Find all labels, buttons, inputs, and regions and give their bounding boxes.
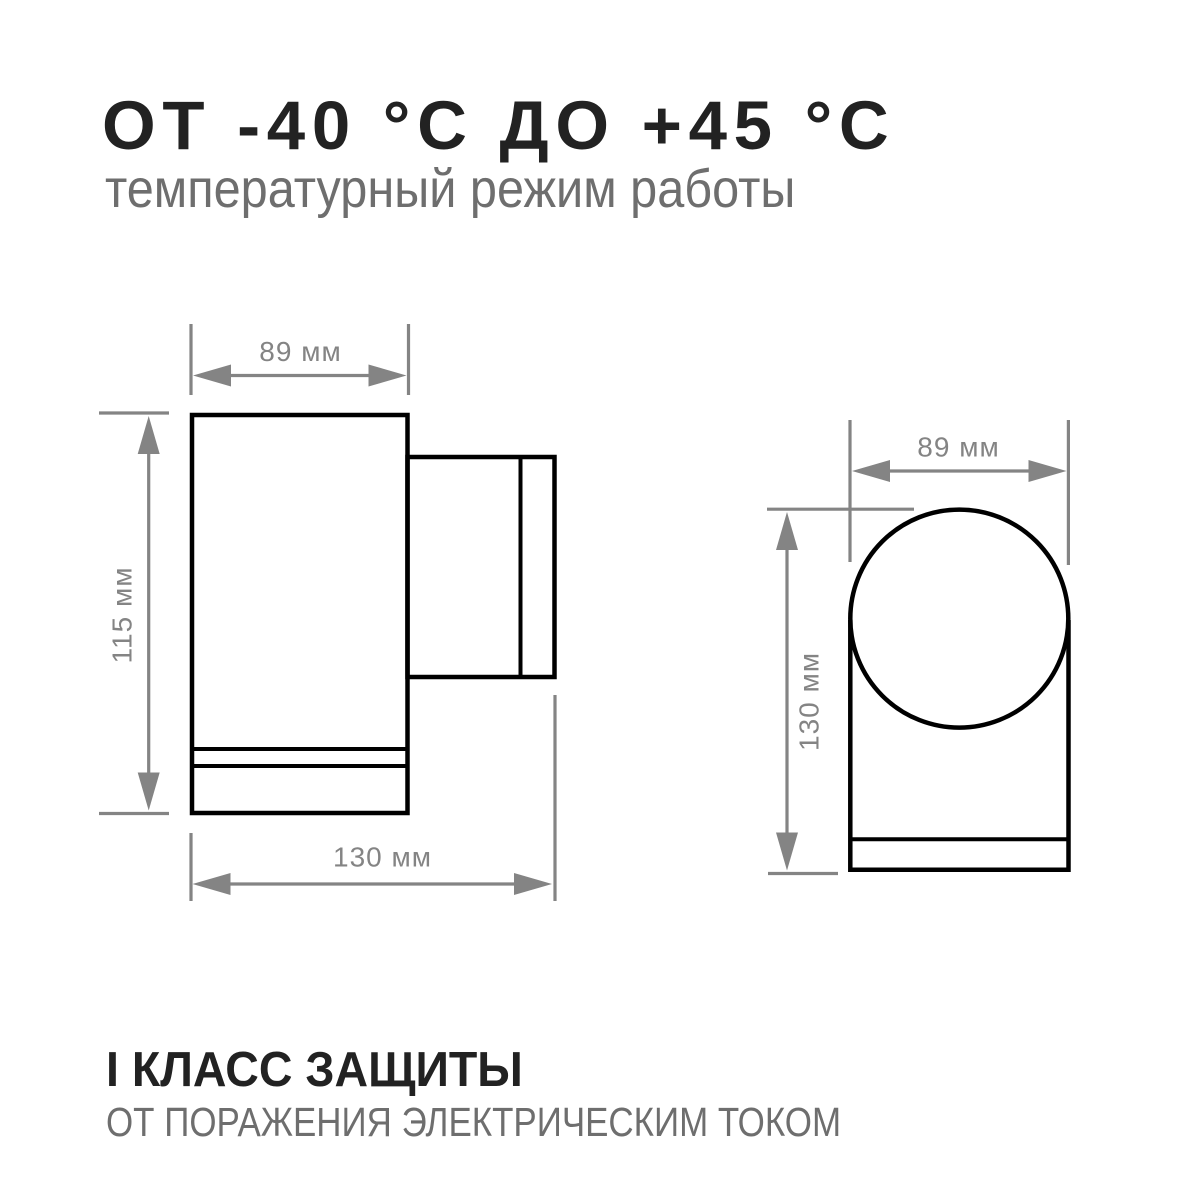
svg-text:89 мм: 89 мм bbox=[917, 432, 999, 463]
svg-text:115 мм: 115 мм bbox=[107, 567, 138, 664]
svg-text:130 мм: 130 мм bbox=[794, 652, 825, 751]
svg-text:130 мм: 130 мм bbox=[333, 842, 432, 873]
svg-text:89 мм: 89 мм bbox=[259, 336, 341, 367]
